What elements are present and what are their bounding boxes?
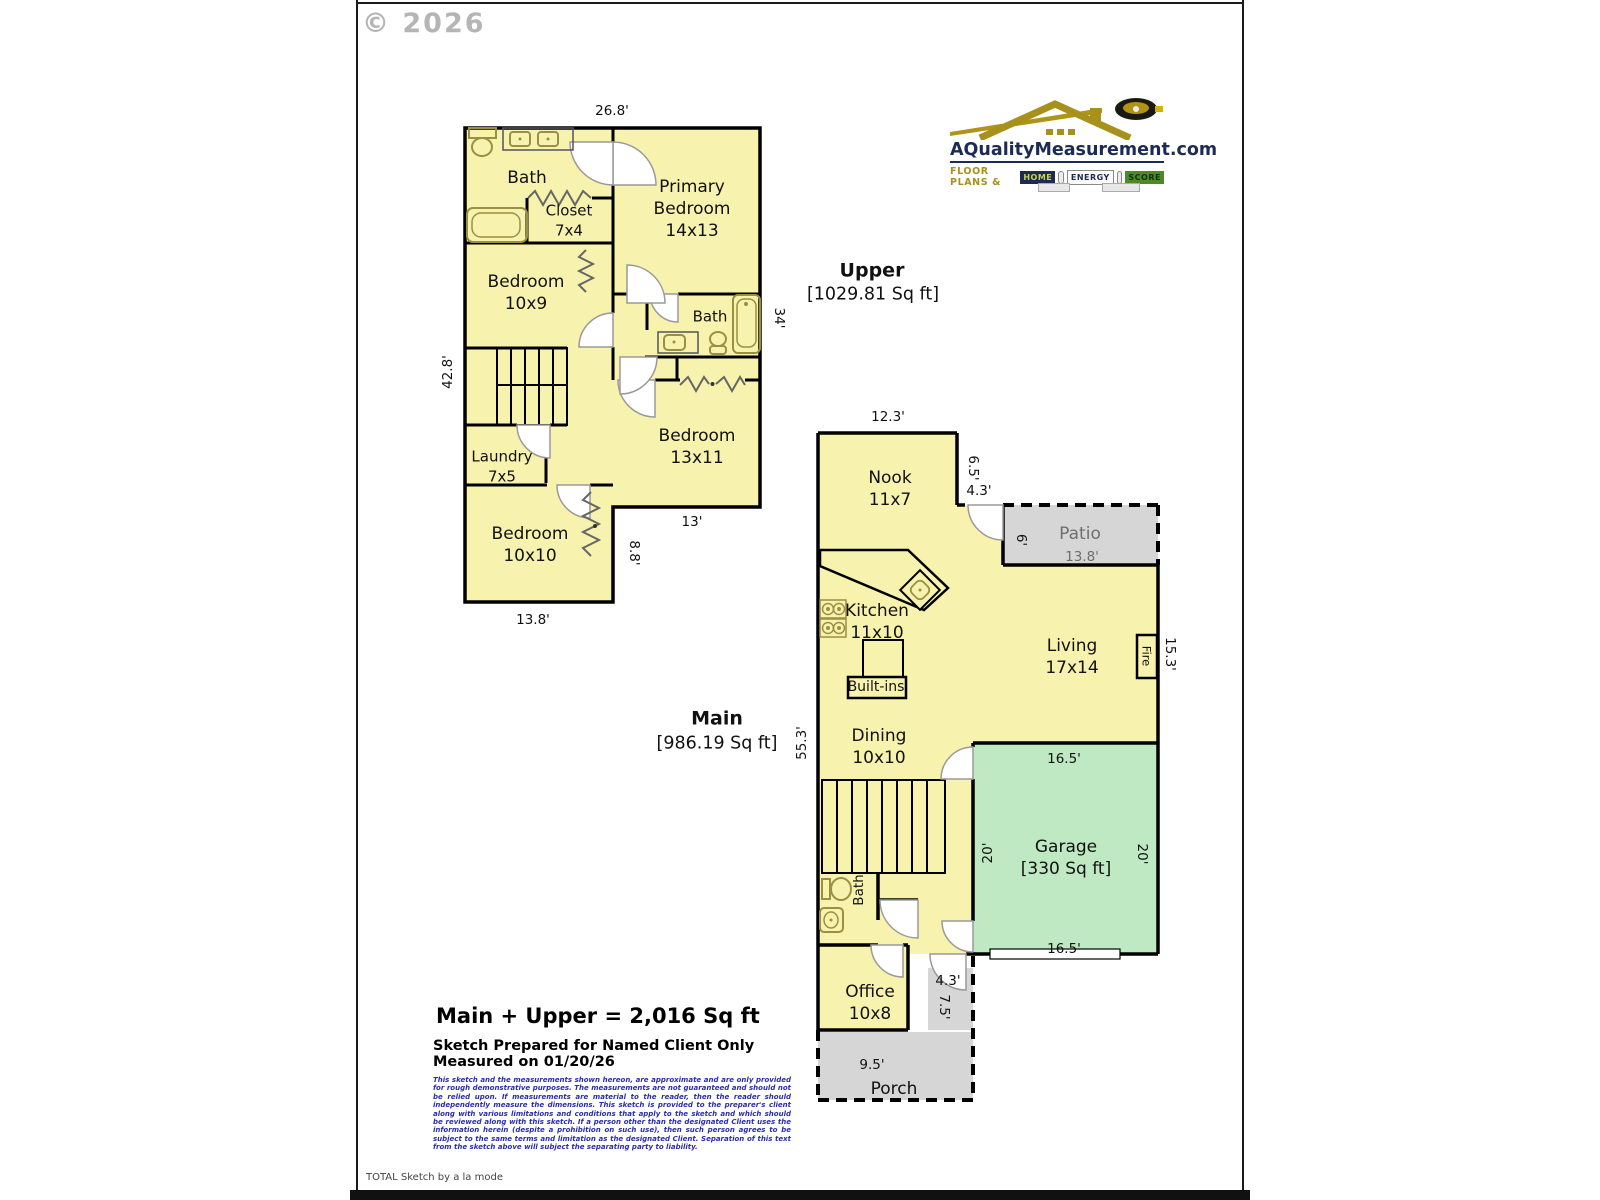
total-area-text: Main + Upper = 2,016 Sq ft bbox=[436, 1004, 760, 1028]
dim-main-nook-top: 12.3' bbox=[871, 409, 905, 427]
disclaimer-text: This sketch and the measurements shown h… bbox=[433, 1076, 791, 1152]
room-label-porch: Porch bbox=[871, 1078, 918, 1100]
upper-floor-area: [1029.81 Sq ft] bbox=[807, 284, 939, 307]
dim-living-right: 15.3' bbox=[1160, 637, 1178, 671]
room-label-bedroom-10x10: Bedroom 10x10 bbox=[492, 523, 569, 567]
dim-garage-top: 16.5' bbox=[1047, 751, 1081, 769]
dim-upper-height-left: 42.8' bbox=[440, 355, 458, 389]
room-label-kitchen: Kitchen 11x10 bbox=[845, 600, 909, 644]
page-border-bottom bbox=[350, 1190, 1250, 1200]
main-floor-area: [986.19 Sq ft] bbox=[657, 733, 778, 756]
dim-garage-left: 20' bbox=[980, 843, 998, 864]
page-border-top bbox=[356, 2, 1244, 4]
thermometer-icon bbox=[1058, 171, 1064, 184]
thermometer-icon bbox=[1117, 171, 1123, 184]
page-border-left bbox=[356, 0, 358, 1196]
tape-measure-icon bbox=[1115, 98, 1163, 120]
room-label-bath-main: Bath bbox=[851, 874, 869, 905]
room-label-bedroom-13x11: Bedroom 13x11 bbox=[659, 425, 736, 469]
logo-subtag bbox=[1102, 183, 1140, 192]
room-label-dining: Dining 10x10 bbox=[852, 725, 907, 769]
window-symbol-dot bbox=[711, 382, 715, 386]
room-label-patio: Patio bbox=[1059, 523, 1101, 545]
dim-upper-13: 13' bbox=[682, 514, 703, 532]
main-floor-plan-drawing bbox=[780, 400, 1180, 1105]
floor-plan-sketch-page: © 2026 AQualityMeasurement.com Floor Pla… bbox=[0, 0, 1600, 1200]
room-label-nook: Nook 11x7 bbox=[868, 467, 911, 511]
dim-entry-width: 4.3' bbox=[935, 973, 960, 991]
dim-upper-8-8: 8.8' bbox=[624, 540, 642, 565]
badge-home: Home bbox=[1020, 171, 1055, 184]
dim-patio-width: 13.8' bbox=[1065, 549, 1099, 567]
room-label-living: Living 17x14 bbox=[1045, 635, 1098, 679]
room-label-garage: Garage [330 Sq ft] bbox=[1021, 836, 1111, 880]
dim-upper-height-right: 34' bbox=[769, 308, 787, 329]
room-label-bath-mid: Bath bbox=[693, 307, 728, 327]
dim-garage-bottom: 16.5' bbox=[1047, 941, 1081, 959]
dim-entry-height: 7.5' bbox=[934, 994, 952, 1019]
room-label-bedroom-10x9: Bedroom 10x9 bbox=[488, 271, 565, 315]
upper-floor-title: Upper bbox=[840, 259, 905, 284]
logo-site-name: AQualityMeasurement.com bbox=[950, 140, 1164, 163]
badge-score: Score bbox=[1125, 171, 1164, 184]
measured-date-text: Measured on 01/20/26 bbox=[433, 1054, 615, 1070]
room-label-closet: Closet 7x4 bbox=[546, 202, 593, 241]
main-floor-title: Main bbox=[691, 707, 743, 732]
page-border-right bbox=[1242, 0, 1244, 1196]
room-label-bath-upper: Bath bbox=[507, 167, 547, 189]
window-symbol-dot bbox=[593, 524, 597, 528]
dim-garage-right: 20' bbox=[1132, 844, 1150, 865]
logo-roof-tape-icon bbox=[950, 98, 1164, 140]
footer-brand-text: TOTAL Sketch by a la mode bbox=[366, 1172, 503, 1183]
dim-main-height-left: 55.3' bbox=[794, 726, 812, 760]
room-label-primary-bedroom: Primary Bedroom 14x13 bbox=[654, 176, 731, 242]
dim-upper-13-8: 13.8' bbox=[516, 612, 550, 630]
company-logo: AQualityMeasurement.com Floor Plans & Ho… bbox=[950, 98, 1164, 198]
dim-main-4-3-nook: 4.3' bbox=[966, 483, 991, 501]
dim-porch-width: 9.5' bbox=[859, 1057, 884, 1075]
room-label-laundry: Laundry 7x5 bbox=[471, 448, 532, 487]
built-ins-label: Built-ins bbox=[848, 678, 905, 696]
dim-patio-depth: 6' bbox=[1011, 534, 1029, 546]
copyright-text: © 2026 bbox=[362, 8, 486, 39]
dim-main-6-5: 6.5' bbox=[963, 455, 981, 480]
prepared-for-text: Sketch Prepared for Named Client Only bbox=[433, 1038, 754, 1054]
fireplace-label: Fire bbox=[1139, 646, 1154, 667]
dim-upper-width-top: 26.8' bbox=[595, 103, 629, 121]
logo-tagline: Floor Plans & bbox=[950, 166, 1017, 188]
room-label-office: Office 10x8 bbox=[845, 981, 895, 1025]
logo-subtag bbox=[1038, 183, 1070, 192]
